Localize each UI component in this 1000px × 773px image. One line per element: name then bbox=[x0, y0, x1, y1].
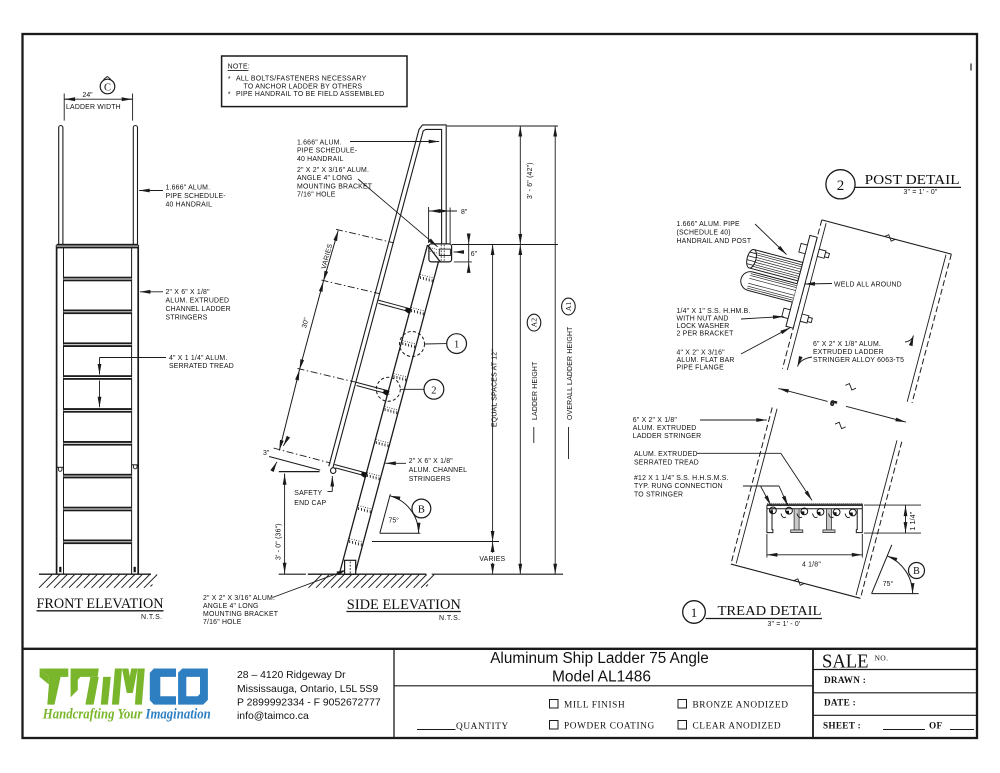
svg-text:LADDER WIDTH: LADDER WIDTH bbox=[66, 104, 121, 111]
svg-text:3' - 0" (36"): 3' - 0" (36") bbox=[276, 523, 283, 560]
svg-text:ALUM. EXTRUDED: ALUM. EXTRUDED bbox=[633, 425, 697, 432]
svg-text:3": 3" bbox=[263, 450, 270, 457]
svg-text:2" X 6" X 1/8": 2" X 6" X 1/8" bbox=[166, 289, 211, 296]
svg-text:LADDER STRINGER: LADDER STRINGER bbox=[633, 433, 701, 440]
svg-text:TO STRINGER: TO STRINGER bbox=[634, 491, 683, 498]
svg-text:SAFETY: SAFETY bbox=[294, 490, 322, 497]
svg-text:8": 8" bbox=[461, 209, 468, 216]
svg-text:ALL BOLTS/FASTENERS NECESSARY: ALL BOLTS/FASTENERS NECESSARY bbox=[236, 76, 367, 83]
svg-text:WITH NUT AND: WITH NUT AND bbox=[677, 316, 729, 323]
svg-text:SALE: SALE bbox=[822, 650, 869, 672]
svg-text:1 1/4": 1 1/4" bbox=[910, 511, 917, 530]
svg-text:*: * bbox=[228, 76, 231, 83]
svg-text:DRAWN :: DRAWN : bbox=[824, 675, 866, 685]
svg-text:ANGLE 4" LONG: ANGLE 4" LONG bbox=[203, 603, 259, 610]
svg-text:TO ANCHOR LADDER BY OTHERS: TO ANCHOR LADDER BY OTHERS bbox=[244, 84, 363, 91]
svg-text:75°: 75° bbox=[389, 516, 400, 524]
svg-text:SERRATED TREAD: SERRATED TREAD bbox=[169, 363, 234, 370]
svg-text:2" X 6" X 1/8": 2" X 6" X 1/8" bbox=[409, 458, 454, 465]
svg-text:MILL FINISH: MILL FINISH bbox=[564, 701, 625, 711]
svg-text:P 2899992334 - F 9052672777: P 2899992334 - F 9052672777 bbox=[237, 698, 381, 709]
svg-text:3" = 1' - 0": 3" = 1' - 0" bbox=[904, 189, 938, 196]
svg-text:POST DETAIL: POST DETAIL bbox=[865, 173, 960, 188]
svg-text:ANGLE 4" LONG: ANGLE 4" LONG bbox=[297, 175, 353, 182]
svg-text:DATE :: DATE : bbox=[824, 698, 856, 708]
svg-text:SERRATED TREAD: SERRATED TREAD bbox=[634, 459, 699, 466]
svg-text:B: B bbox=[418, 505, 425, 516]
svg-text:N.T.S.: N.T.S. bbox=[141, 614, 162, 621]
svg-text:3' - 6" (42"): 3' - 6" (42") bbox=[527, 162, 534, 199]
svg-text:1.666" ALUM.: 1.666" ALUM. bbox=[297, 139, 342, 146]
svg-text:#12 X 1 1/4" S.S. H.H.S.M.S.: #12 X 1 1/4" S.S. H.H.S.M.S. bbox=[634, 475, 729, 482]
svg-text:1: 1 bbox=[454, 340, 459, 351]
svg-text:4" X 2" X 3/16": 4" X 2" X 3/16" bbox=[677, 350, 726, 357]
svg-text:7/16" HOLE: 7/16" HOLE bbox=[203, 619, 242, 626]
svg-text:QUANTITY: QUANTITY bbox=[456, 722, 509, 732]
svg-text:40 HANDRAIL: 40 HANDRAIL bbox=[297, 156, 344, 163]
svg-text:OF: OF bbox=[929, 721, 942, 731]
svg-text:STRINGER ALLOY 6063-T5: STRINGER ALLOY 6063-T5 bbox=[813, 357, 904, 364]
svg-text:OVERALL LADDER HEIGHT: OVERALL LADDER HEIGHT bbox=[567, 326, 574, 420]
svg-text:CLEAR ANODIZED: CLEAR ANODIZED bbox=[693, 722, 782, 732]
svg-text:ALUM. CHANNEL: ALUM. CHANNEL bbox=[409, 467, 468, 474]
svg-text:C: C bbox=[104, 82, 111, 93]
svg-text:(SCHEDULE 40): (SCHEDULE 40) bbox=[677, 230, 731, 237]
svg-text:1.666" ALUM. PIPE: 1.666" ALUM. PIPE bbox=[677, 221, 741, 228]
svg-text:A2: A2 bbox=[530, 318, 539, 328]
svg-text:6" X 2" X 1/8" ALUM.: 6" X 2" X 1/8" ALUM. bbox=[813, 341, 881, 348]
svg-text:PIPE SCHEDULE-: PIPE SCHEDULE- bbox=[297, 148, 357, 155]
svg-text:SHEET :: SHEET : bbox=[823, 721, 861, 731]
svg-text:2" X 2" X 3/16" ALUM.: 2" X 2" X 3/16" ALUM. bbox=[203, 595, 275, 602]
svg-text:*: * bbox=[228, 92, 231, 99]
svg-text:END CAP: END CAP bbox=[294, 500, 326, 507]
svg-text:POWDER COATING: POWDER COATING bbox=[564, 722, 655, 732]
svg-text:ALUM. FLAT BAR: ALUM. FLAT BAR bbox=[677, 357, 735, 364]
svg-text:75°: 75° bbox=[883, 580, 894, 588]
svg-text:1/4" X 1" S.S. H.HM.B.: 1/4" X 1" S.S. H.HM.B. bbox=[677, 308, 751, 315]
svg-text:MOUNTING BRACKET: MOUNTING BRACKET bbox=[203, 611, 279, 618]
svg-text:STRINGERS: STRINGERS bbox=[166, 315, 208, 322]
svg-text:6" X 2" X 1/8": 6" X 2" X 1/8" bbox=[633, 417, 678, 424]
svg-text:Model AL1486: Model AL1486 bbox=[552, 669, 651, 686]
svg-text:2 PER BRACKET: 2 PER BRACKET bbox=[677, 331, 735, 338]
svg-text:2: 2 bbox=[837, 178, 845, 194]
svg-text:STRINGERS: STRINGERS bbox=[409, 476, 451, 483]
svg-text:4 1/8": 4 1/8" bbox=[802, 562, 821, 569]
svg-text:WELD ALL AROUND: WELD ALL AROUND bbox=[834, 281, 902, 288]
svg-text:6": 6" bbox=[471, 251, 478, 258]
svg-text:24": 24" bbox=[83, 92, 94, 99]
svg-text:VARIES: VARIES bbox=[479, 556, 505, 563]
svg-text:info@taimco.ca: info@taimco.ca bbox=[237, 711, 309, 722]
svg-text:4" X 1 1/4" ALUM.: 4" X 1 1/4" ALUM. bbox=[169, 355, 227, 362]
svg-text:LOCK WASHER: LOCK WASHER bbox=[677, 323, 730, 330]
svg-text:SIDE ELEVATION: SIDE ELEVATION bbox=[347, 597, 461, 613]
svg-text:LADDER HEIGHT: LADDER HEIGHT bbox=[532, 361, 539, 420]
svg-text:BRONZE ANODIZED: BRONZE ANODIZED bbox=[693, 701, 789, 711]
svg-text:Mississauga, Ontario, L5L 5S9: Mississauga, Ontario, L5L 5S9 bbox=[237, 684, 378, 695]
svg-text:PIPE HANDRAIL TO BE FIELD ASSE: PIPE HANDRAIL TO BE FIELD ASSEMBLED bbox=[236, 91, 384, 98]
svg-text:MOUNTING BRACKET: MOUNTING BRACKET bbox=[297, 183, 373, 190]
svg-text:ALUM. EXTRUDED: ALUM. EXTRUDED bbox=[166, 297, 230, 304]
svg-text:EQUAL SPACES AT 12": EQUAL SPACES AT 12" bbox=[492, 349, 499, 427]
svg-text:NOTE:: NOTE: bbox=[228, 64, 251, 71]
svg-text:28 – 4120 Ridgeway Dr: 28 – 4120 Ridgeway Dr bbox=[237, 670, 346, 681]
svg-text:B: B bbox=[913, 566, 920, 577]
svg-text:PIPE FLANGE: PIPE FLANGE bbox=[677, 365, 725, 372]
svg-text:N.T.S.: N.T.S. bbox=[439, 615, 460, 622]
svg-text:EXTRUDED LADDER: EXTRUDED LADDER bbox=[813, 349, 884, 356]
svg-text:TYP. RUNG CONNECTION: TYP. RUNG CONNECTION bbox=[634, 483, 723, 490]
svg-text:CHANNEL LADDER: CHANNEL LADDER bbox=[166, 306, 231, 313]
svg-text:2" X 2" X 3/16" ALUM.: 2" X 2" X 3/16" ALUM. bbox=[297, 167, 369, 174]
svg-text:7/16" HOLE: 7/16" HOLE bbox=[297, 192, 336, 199]
svg-text:A1: A1 bbox=[564, 302, 573, 312]
svg-text:40 HANDRAIL: 40 HANDRAIL bbox=[166, 201, 213, 208]
svg-text:1: 1 bbox=[691, 605, 698, 620]
svg-text:Handcrafting Your Imagination: Handcrafting Your Imagination bbox=[42, 707, 211, 723]
svg-text:PIPE SCHEDULE-: PIPE SCHEDULE- bbox=[166, 193, 226, 200]
svg-text:3" = 1' - 0': 3" = 1' - 0' bbox=[768, 621, 801, 628]
svg-text:FRONT ELEVATION: FRONT ELEVATION bbox=[37, 596, 164, 612]
svg-text:TREAD DETAIL: TREAD DETAIL bbox=[718, 604, 822, 619]
svg-text:1.666" ALUM.: 1.666" ALUM. bbox=[166, 185, 211, 192]
svg-text:ALUM. EXTRUDED: ALUM. EXTRUDED bbox=[634, 451, 698, 458]
svg-text:NO.: NO. bbox=[875, 654, 889, 663]
svg-text:HANDRAIL AND POST: HANDRAIL AND POST bbox=[677, 238, 752, 245]
svg-text:2: 2 bbox=[431, 385, 436, 396]
svg-text:Aluminum Ship Ladder 75 Angle: Aluminum Ship Ladder 75 Angle bbox=[490, 650, 709, 667]
